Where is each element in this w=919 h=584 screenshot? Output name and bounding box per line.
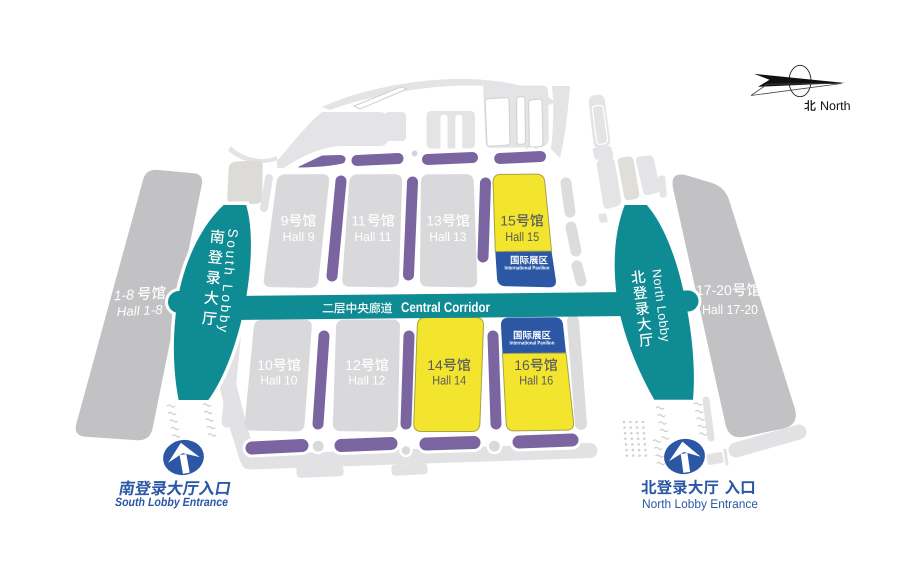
svg-text:17-20: 17-20 (696, 282, 732, 298)
svg-text:Hall 16: Hall 16 (519, 374, 553, 388)
svg-text:10: 10 (257, 357, 273, 373)
svg-text:Hall 14: Hall 14 (432, 374, 466, 388)
svg-text:Hall 15: Hall 15 (505, 230, 539, 244)
svg-text:Hall 17-20: Hall 17-20 (702, 302, 758, 317)
svg-text:13: 13 (426, 213, 442, 229)
svg-text:North Lobby Entrance: North Lobby Entrance (642, 497, 758, 511)
svg-text:International Pavilion: International Pavilion (505, 266, 550, 272)
svg-text:Central Corridor: Central Corridor (401, 299, 490, 315)
svg-text:9: 9 (281, 213, 289, 229)
svg-text:Hall 1-8: Hall 1-8 (116, 302, 164, 319)
svg-text:12: 12 (345, 357, 361, 373)
svg-text:Hall 13: Hall 13 (429, 230, 466, 244)
svg-text:16: 16 (514, 357, 530, 373)
svg-text:Hall 11: Hall 11 (354, 230, 391, 244)
svg-text:Hall 9: Hall 9 (283, 230, 315, 244)
svg-text:South Lobby Entrance: South Lobby Entrance (115, 495, 228, 509)
svg-text:1-8: 1-8 (113, 286, 134, 303)
svg-text:North: North (820, 99, 851, 113)
svg-text:Hall 10: Hall 10 (260, 374, 297, 388)
svg-text:14: 14 (427, 357, 443, 373)
svg-text:15: 15 (500, 213, 516, 229)
svg-text:11: 11 (351, 213, 366, 229)
svg-text:Hall 12: Hall 12 (348, 374, 385, 388)
svg-text:International Pavilion: International Pavilion (510, 341, 555, 347)
